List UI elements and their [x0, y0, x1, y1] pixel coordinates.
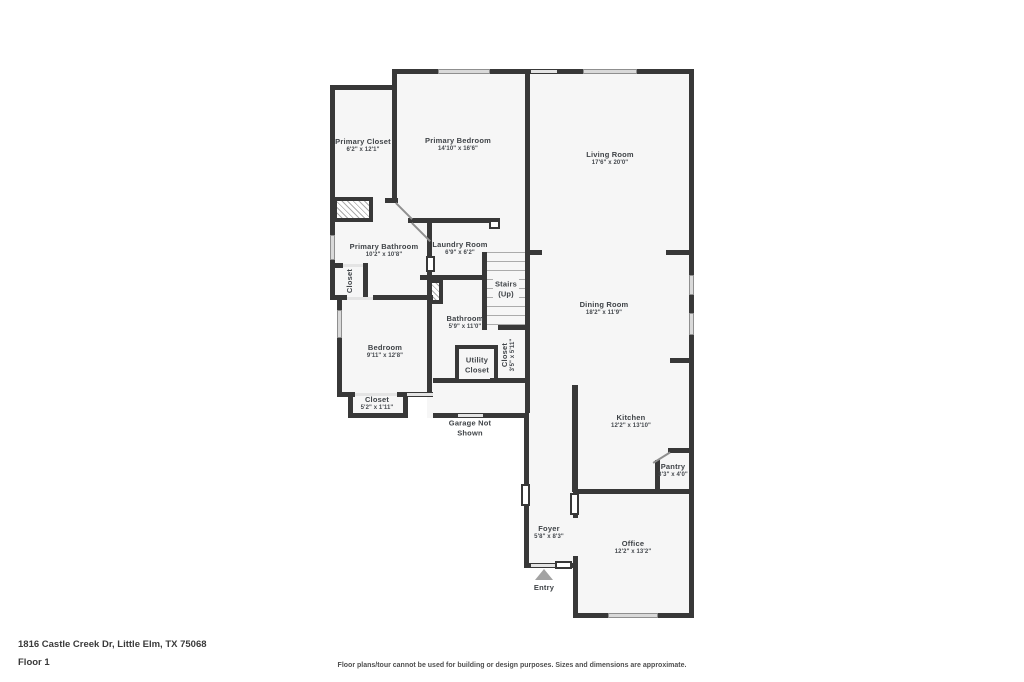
wall: [330, 85, 392, 90]
door-marker: [555, 561, 572, 569]
wall: [330, 263, 343, 268]
door-marker: [489, 220, 500, 229]
room-label-primary-bathroom: Primary Bathroom 10'2" x 10'8": [350, 242, 419, 260]
window: [438, 69, 490, 74]
window: [689, 275, 694, 295]
room-label-entry: Entry: [534, 583, 554, 593]
wall: [433, 378, 459, 383]
room-label-foyer: Foyer 5'8" x 8'3": [534, 524, 564, 542]
wall-opening: [458, 414, 483, 417]
room-label-pantry: Pantry 3'3" x 4'0": [658, 462, 688, 480]
wall: [572, 385, 578, 492]
room-label-primary-bedroom: Primary Bedroom 14'10" x 16'6": [425, 136, 491, 154]
wall: [573, 489, 694, 494]
hatched-area: [333, 197, 373, 222]
window: [689, 313, 694, 335]
room-label-closet-stairs: Closet 3'5" x 5'11": [500, 339, 518, 372]
room-label-bedroom: Bedroom 9'11" x 12'8": [367, 343, 403, 361]
wall: [348, 413, 408, 418]
wall-opening: [531, 70, 557, 73]
window: [608, 613, 658, 618]
wall-opening: [407, 393, 433, 396]
room-label-utility-closet: Utility Closet: [456, 355, 498, 375]
room-label-closet-bathroom: Closet: [345, 269, 355, 293]
room-label-laundry-room: Laundry Room 6'9" x 6'2": [432, 240, 487, 258]
wall: [403, 393, 408, 418]
room-label-living-room: Living Room 17'6" x 20'0": [586, 150, 634, 168]
floor-number-label: Floor 1: [18, 657, 50, 668]
wall: [525, 69, 530, 223]
door-marker: [426, 256, 435, 272]
room-label-closet-bedroom: Closet 5'2" x 1'11": [361, 395, 394, 413]
garage-note: Garage Not Shown: [437, 418, 503, 438]
wall-opening: [343, 264, 363, 267]
wall: [455, 379, 498, 383]
wall: [420, 275, 487, 280]
wall: [392, 69, 397, 203]
room-label-dining-room: Dining Room 18'2" x 11'9": [580, 300, 629, 318]
property-address: 1816 Castle Creek Dr, Little Elm, TX 750…: [18, 639, 207, 650]
wall: [455, 345, 498, 349]
wall: [668, 448, 689, 453]
window: [337, 310, 342, 338]
wall: [427, 223, 432, 395]
wall: [373, 295, 433, 300]
wall: [498, 325, 530, 330]
wall: [670, 358, 689, 363]
room-label-primary-closet: Primary Closet 6'2" x 12'1": [335, 137, 391, 155]
room-label-office: Office 12'2" x 13'2": [615, 539, 652, 557]
door-marker: [521, 484, 530, 506]
wall: [666, 250, 689, 255]
wall: [530, 250, 542, 255]
window: [583, 69, 637, 74]
room-label-bathroom: Bathroom 5'9" x 11'0": [446, 314, 483, 332]
wall-opening: [347, 297, 373, 300]
room-label-stairs: Stairs (Up): [493, 278, 519, 300]
window: [330, 235, 335, 260]
disclaimer-text: Floor plans/tour cannot be used for buil…: [338, 662, 687, 669]
room-label-kitchen: Kitchen 12'2" x 13'10": [611, 413, 651, 431]
entry-arrow-icon: [535, 569, 553, 580]
wall: [363, 263, 368, 300]
floor-plan-canvas: Primary Closet 6'2" x 12'1" Primary Bedr…: [0, 0, 1024, 682]
entry-opening: [531, 564, 557, 567]
wall: [408, 218, 500, 223]
door-marker: [570, 493, 579, 515]
wall: [689, 69, 694, 618]
